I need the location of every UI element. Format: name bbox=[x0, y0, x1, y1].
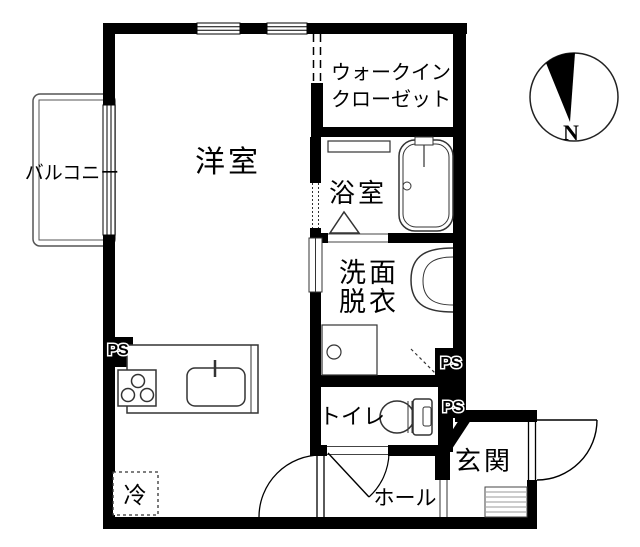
entrance-steps bbox=[485, 487, 527, 517]
wall-closet-bottom bbox=[311, 127, 466, 137]
label-toilet: トイレ bbox=[319, 404, 385, 429]
stove-burners-icon bbox=[118, 370, 156, 406]
label-ps-toilet: PS bbox=[442, 399, 464, 416]
label-closet-line1: ウォークイン bbox=[331, 61, 451, 84]
label-washroom-line1: 洗面 bbox=[339, 258, 399, 288]
label-ps-kitchen: PS bbox=[107, 342, 129, 359]
label-bath: 浴室 bbox=[329, 178, 387, 208]
toilet-fixture-icon bbox=[380, 399, 432, 435]
wall-hall-right bbox=[435, 452, 450, 480]
label-ps-washroom: PS bbox=[440, 355, 462, 372]
floor-plan-drawing: 洋室 バルコニー ウォークイン クローゼット 浴室 洗面 脱衣 トイレ ホール … bbox=[0, 0, 640, 547]
wall-entrance-top bbox=[455, 410, 537, 422]
floor-plan: 洋室 バルコニー ウォークイン クローゼット 浴室 洗面 脱衣 トイレ ホール … bbox=[0, 0, 640, 547]
label-compass-north: N bbox=[563, 120, 579, 145]
wall-left bbox=[103, 23, 115, 529]
window-top-2 bbox=[267, 23, 307, 34]
label-living: 洋室 bbox=[195, 146, 261, 179]
washroom-sliding-door bbox=[309, 238, 322, 292]
wall-divider-upper bbox=[310, 137, 321, 183]
wall-entrance-right bbox=[527, 480, 537, 523]
label-hall: ホール bbox=[374, 487, 437, 510]
wall-bottom bbox=[103, 517, 537, 529]
label-balcony: バルコニー bbox=[25, 163, 120, 184]
wall-washroom-bottom bbox=[310, 375, 466, 387]
window-top-1 bbox=[197, 23, 240, 34]
label-closet-line2: クローゼット bbox=[331, 88, 451, 111]
bath-hatched-wall bbox=[310, 183, 321, 228]
label-fridge: 冷 bbox=[124, 482, 147, 508]
bath-door-opening bbox=[328, 233, 388, 243]
label-entrance: 玄関 bbox=[455, 446, 513, 476]
toilet-door-opening bbox=[327, 445, 388, 456]
bath-shelf bbox=[328, 141, 390, 152]
washing-machine-pan bbox=[322, 325, 377, 375]
label-washroom-line2: 脱衣 bbox=[339, 287, 399, 317]
bathtub-icon bbox=[399, 137, 453, 231]
wall-divider-lower bbox=[310, 292, 321, 455]
